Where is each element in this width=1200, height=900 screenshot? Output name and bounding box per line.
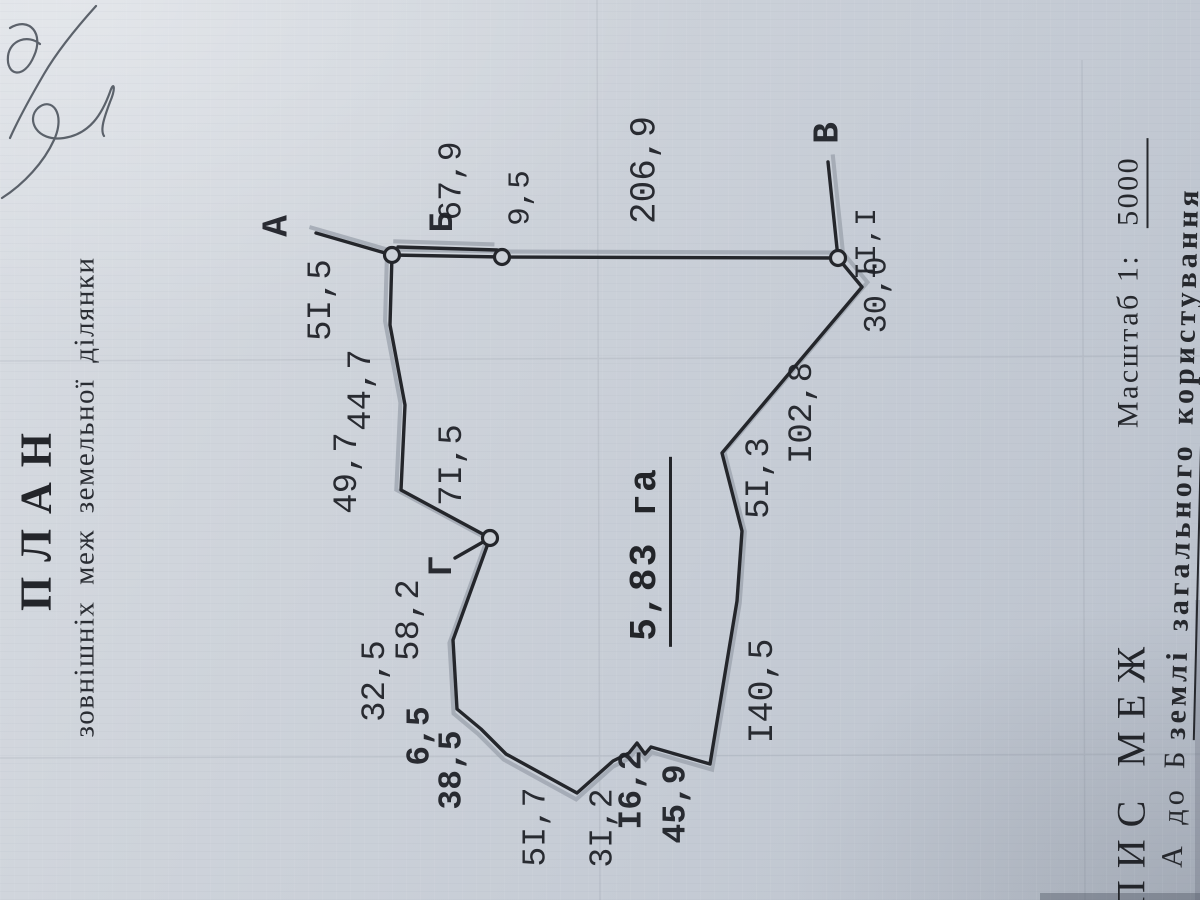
plan-label-Г: Г	[424, 556, 462, 576]
plan-label-3I,2: 3I,2	[585, 788, 622, 867]
plan-label-30,0: 30,0	[859, 257, 896, 334]
plan-label-I02,8: I02,8	[784, 362, 822, 464]
plan-label-45,9: 45,9	[658, 764, 695, 843]
plan-label-5I,3: 5I,3	[741, 437, 779, 519]
plan-drawing	[0, 0, 1200, 900]
plan-label-I40,5: I40,5	[743, 638, 783, 743]
scale-label: Масштаб 1:	[1112, 254, 1145, 428]
signature-scribble	[2, 6, 114, 198]
plan-label-206,9: 206,9	[625, 116, 666, 224]
plan-label-6,5: 6,5	[402, 706, 439, 765]
boundary-description-heading: ПИС МЕЖ	[1108, 635, 1155, 900]
plan-label-58,2: 58,2	[391, 579, 429, 661]
plan-label-67,9: 67,9	[434, 141, 471, 220]
paper-creases	[0, 0, 1200, 900]
scale-value: 5000	[1112, 138, 1149, 228]
plan-label-В: В	[808, 122, 849, 144]
plan-label-5I,7: 5I,7	[518, 787, 555, 866]
plan-label-32,5: 32,5	[357, 640, 395, 722]
plan-label-А: А	[257, 215, 298, 237]
parcel-area-value: 5,83 га	[624, 457, 672, 647]
plan-label-5I,5: 5I,5	[303, 259, 341, 341]
plan-label-38,5: 38,5	[434, 730, 471, 809]
plan-title: П Л А Н	[11, 431, 62, 611]
plan-subtitle: зовнішніх меж земельної ділянки	[69, 256, 102, 737]
scale-line: Масштаб 1:5000	[1112, 138, 1149, 428]
plan-label-7I,5: 7I,5	[434, 424, 472, 506]
plan-label-44,7: 44,7	[343, 349, 381, 431]
scanned-plan-page: П Л А Н зовнішніх меж земельної ділянки …	[0, 0, 1200, 900]
legend-segment: А до Б	[1156, 747, 1192, 868]
plan-label-9,5: 9,5	[504, 170, 539, 226]
plan-label-49,7: 49,7	[329, 432, 367, 514]
